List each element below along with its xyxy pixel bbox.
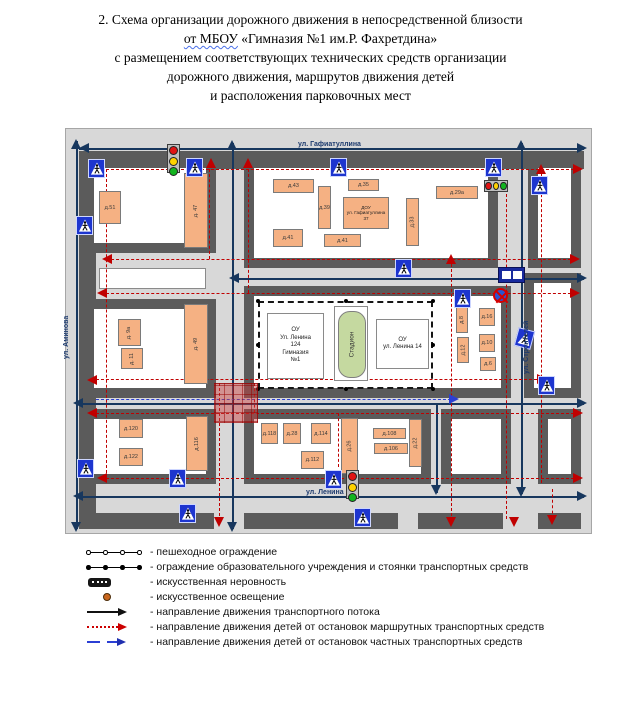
map-building: д. 11 xyxy=(121,348,143,369)
map-building: д.33 xyxy=(406,198,419,246)
street-band xyxy=(418,513,503,529)
route-arrow-icon xyxy=(449,394,459,404)
fence-post-dot xyxy=(344,387,348,391)
pedestrian-crossing-sign-icon xyxy=(186,158,203,177)
street-band xyxy=(538,513,581,529)
flow-arrow-icon xyxy=(73,398,83,408)
title-line-5: и расположения парковочных мест xyxy=(0,86,621,105)
children-bus-route-line xyxy=(506,194,507,519)
legend-label: - ограждение образовательного учреждения… xyxy=(150,561,528,573)
pedestrian-crossing-sign-icon xyxy=(538,376,555,395)
route-arrow-icon xyxy=(87,375,97,385)
traffic-scheme-map: ОУУл. Ленина124Гимназия№1ОУул. Ленина 14… xyxy=(65,128,592,534)
children-private-route-icon xyxy=(86,638,150,646)
pedestrian-crossing-sign-icon xyxy=(531,176,548,195)
map-building: д.35 xyxy=(348,179,379,191)
legend-row: - направление движения детей от останово… xyxy=(0,634,621,649)
street-band xyxy=(244,513,398,529)
map-building: д.29а xyxy=(436,186,478,199)
map-building: д.12 xyxy=(457,337,469,363)
traffic-flow-line xyxy=(79,148,584,150)
map-building: д.112 xyxy=(301,451,324,469)
children-bus-route-line xyxy=(541,169,542,483)
fence-post-dot xyxy=(431,387,435,391)
map-building: д.22 xyxy=(409,419,422,467)
children-bus-route-icon xyxy=(86,623,150,631)
traffic-flow-line xyxy=(232,143,234,529)
legend-label: - искусственная неровность xyxy=(150,576,286,588)
street-light-icon xyxy=(86,593,150,601)
city-block-strip xyxy=(99,268,206,289)
route-arrow-icon xyxy=(97,473,107,483)
legend: - пешеходное ограждение - ограждение обр… xyxy=(0,545,621,649)
flow-arrow-icon xyxy=(71,139,81,149)
flow-arrow-icon xyxy=(431,485,441,495)
map-building: д.28 xyxy=(283,423,301,444)
flow-arrow-icon xyxy=(577,398,587,408)
flow-arrow-icon xyxy=(229,273,239,283)
route-arrow-icon xyxy=(446,517,456,527)
map-building: д.51 xyxy=(99,191,121,224)
map-building: д.106 xyxy=(374,443,408,454)
street-label: ул. Гафиатуллина xyxy=(298,141,361,148)
title-line-3: с размещением соответствующих технически… xyxy=(0,48,621,67)
traffic-light-icon xyxy=(484,180,508,192)
flow-arrow-icon xyxy=(577,143,587,153)
school-building-ou14: ОУул. Ленина 14 xyxy=(376,319,429,369)
pedestrian-crossing-sign-icon xyxy=(77,459,94,478)
title-line-4: дорожного движения, маршрутов движения д… xyxy=(0,67,621,86)
route-arrow-icon xyxy=(446,254,456,264)
route-arrow-icon xyxy=(536,164,546,174)
pedestrian-crossing-sign-icon xyxy=(88,159,105,178)
traffic-light-icon xyxy=(346,470,359,499)
school-fence-icon xyxy=(86,564,150,571)
route-arrow-icon xyxy=(547,515,557,525)
map-building: д.16 xyxy=(479,308,495,326)
pedestrian-crossing-sign-icon xyxy=(395,259,412,278)
route-arrow-icon xyxy=(570,254,580,264)
pedestrian-crossing-sign-icon xyxy=(454,289,471,308)
city-block xyxy=(528,158,581,268)
title-line-2: от МБОУ «Гимназия №1 им.Р. Фахретдина» xyxy=(0,29,621,48)
traffic-flow-line xyxy=(521,143,523,494)
route-arrow-icon xyxy=(97,288,107,298)
pedestrian-crossing-sign-icon xyxy=(330,158,347,177)
map-building: д.108 xyxy=(373,428,406,439)
pedestrian-fence-icon xyxy=(86,549,150,556)
route-arrow-icon xyxy=(243,158,253,168)
pedestrian-crossing-sign-icon xyxy=(325,470,342,489)
traffic-flow-line xyxy=(436,405,438,493)
fence-post-dot xyxy=(344,299,348,303)
map-building: д. 49 xyxy=(184,304,208,384)
title-line-1: 2. Схема организации дорожного движения … xyxy=(0,10,621,29)
street-label: ул. Строителей xyxy=(523,321,530,374)
children-private-route-line xyxy=(96,399,456,400)
children-bus-route-line xyxy=(338,413,339,467)
map-building: д.41 xyxy=(273,229,303,247)
kindergarten-building: ДОУул. Гафиатуллина37 xyxy=(343,197,389,229)
map-building: д.10 xyxy=(479,334,495,352)
fence-post-dot xyxy=(431,343,435,347)
pedestrian-crossing-sign-icon xyxy=(76,216,93,235)
map-building: д.116 xyxy=(186,416,208,471)
route-arrow-icon xyxy=(573,473,583,483)
route-arrow-icon xyxy=(87,408,97,418)
legend-row: - направление движения транспортного пот… xyxy=(0,605,621,620)
map-building: д.39 xyxy=(318,186,331,229)
route-arrow-icon xyxy=(102,254,112,264)
flow-arrow-icon xyxy=(577,491,587,501)
legend-label: - направление движения транспортного пот… xyxy=(150,606,380,618)
flow-arrow-icon xyxy=(516,487,526,497)
traffic-light-icon xyxy=(167,144,180,173)
children-bus-route-line xyxy=(248,169,249,293)
map-building: д. 47 xyxy=(184,173,208,248)
flow-arrow-icon xyxy=(73,491,83,501)
flow-arrow-icon xyxy=(71,522,81,532)
title-line-2-wavy: от МБОУ xyxy=(184,31,238,46)
street-label: ул. Аминова xyxy=(63,316,70,359)
flow-arrow-icon xyxy=(516,140,526,150)
legend-label: - направление движения детей от останово… xyxy=(150,636,523,648)
map-building: д.26 xyxy=(341,418,358,474)
map-building: д.43 xyxy=(273,179,314,193)
pedestrian-crossing-sign-icon xyxy=(485,158,502,177)
pedestrian-crossing-sign-icon xyxy=(179,504,196,523)
fence-post-dot xyxy=(256,343,260,347)
no-stopping-sign-icon xyxy=(493,288,508,303)
stadium: Стадион xyxy=(338,311,366,378)
legend-row: - направление движения детей от останово… xyxy=(0,619,621,634)
map-building: д.41 xyxy=(324,234,361,247)
legend-label: - искусственное освещение xyxy=(150,591,284,603)
legend-row: - пешеходное ограждение xyxy=(0,545,621,560)
route-arrow-icon xyxy=(509,517,519,527)
legend-label: - пешеходное ограждение xyxy=(150,546,277,558)
map-building: д.120 xyxy=(119,419,143,438)
map-building: д. 9а xyxy=(118,319,141,346)
traffic-flow-arrow-icon xyxy=(86,608,150,616)
legend-row: - искусственная неровность xyxy=(0,575,621,590)
children-bus-route-line xyxy=(209,169,210,259)
bus-stop-sign-icon xyxy=(498,267,525,283)
flow-arrow-icon xyxy=(227,140,237,150)
school-crossing-zone xyxy=(214,383,258,423)
map-building: д.8 xyxy=(456,306,468,333)
pedestrian-crossing-sign-icon xyxy=(169,469,186,488)
speed-bump-icon xyxy=(86,578,150,587)
map-building: д.114 xyxy=(311,423,331,444)
traffic-flow-line xyxy=(76,403,584,405)
map-building: д.118 xyxy=(261,423,278,444)
map-building: д.6 xyxy=(480,357,496,371)
fence-post-dot xyxy=(256,299,260,303)
flow-arrow-icon xyxy=(227,522,237,532)
route-arrow-icon xyxy=(206,158,216,168)
title-line-2-rest: «Гимназия №1 им.Р. Фахретдина» xyxy=(238,31,437,46)
route-arrow-icon xyxy=(214,517,224,527)
legend-label: - направление движения детей от останово… xyxy=(150,621,544,633)
pedestrian-crossing-sign-icon xyxy=(354,508,371,527)
document-page: 2. Схема организации дорожного движения … xyxy=(0,0,621,703)
children-bus-route-line xyxy=(451,259,452,521)
route-arrow-icon xyxy=(570,288,580,298)
school-building-gymnasium: ОУУл. Ленина124Гимназия№1 xyxy=(267,313,324,379)
map-building: д.122 xyxy=(119,448,143,466)
route-arrow-icon xyxy=(573,164,583,174)
fence-post-dot xyxy=(431,299,435,303)
street-label: ул. Ленина xyxy=(306,489,344,496)
legend-row: - искусственное освещение xyxy=(0,590,621,605)
route-arrow-icon xyxy=(573,408,583,418)
legend-row: - ограждение образовательного учреждения… xyxy=(0,560,621,575)
page-title: 2. Схема организации дорожного движения … xyxy=(0,10,621,105)
flow-arrow-icon xyxy=(577,273,587,283)
traffic-flow-line xyxy=(76,496,584,498)
